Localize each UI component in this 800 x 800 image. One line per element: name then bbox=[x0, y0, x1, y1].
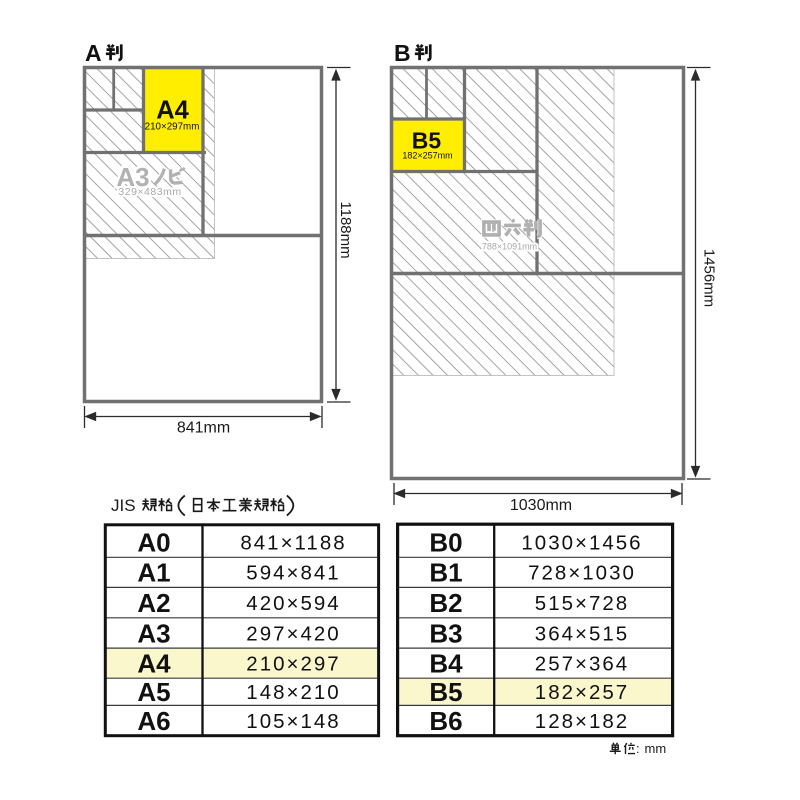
svg-text:B2: B2 bbox=[429, 588, 462, 618]
svg-text:A2: A2 bbox=[137, 588, 170, 618]
svg-text:B6: B6 bbox=[429, 706, 462, 736]
svg-text:182×257: 182×257 bbox=[535, 681, 629, 704]
svg-text:728×1030: 728×1030 bbox=[528, 562, 636, 585]
svg-text:182×257mm: 182×257mm bbox=[402, 150, 452, 160]
svg-text:329×483mm: 329×483mm bbox=[118, 186, 181, 198]
svg-text:mm: mm bbox=[645, 741, 667, 756]
svg-text:210×297mm: 210×297mm bbox=[145, 122, 200, 133]
svg-text:841mm: 841mm bbox=[177, 420, 230, 437]
svg-text:420×594: 420×594 bbox=[246, 592, 340, 615]
svg-text:A4: A4 bbox=[156, 97, 189, 125]
svg-text:210×297: 210×297 bbox=[246, 653, 340, 676]
svg-text::: : bbox=[636, 741, 640, 756]
svg-text:B5: B5 bbox=[429, 677, 462, 707]
svg-text:257×364: 257×364 bbox=[535, 653, 629, 676]
svg-text:1456mm: 1456mm bbox=[701, 249, 718, 307]
svg-text:1188mm: 1188mm bbox=[337, 201, 354, 258]
svg-text:B0: B0 bbox=[429, 527, 462, 557]
svg-text:JIS: JIS bbox=[111, 496, 136, 515]
svg-text:B4: B4 bbox=[429, 649, 463, 679]
svg-text:841×1188: 841×1188 bbox=[240, 531, 346, 554]
svg-text:A4: A4 bbox=[137, 649, 171, 679]
svg-text:148×210: 148×210 bbox=[246, 681, 340, 704]
svg-text:1030×1456: 1030×1456 bbox=[521, 531, 642, 554]
svg-text:B: B bbox=[394, 40, 411, 66]
svg-text:B1: B1 bbox=[429, 558, 462, 588]
svg-text:128×182: 128×182 bbox=[535, 710, 629, 733]
svg-text:A1: A1 bbox=[137, 558, 170, 588]
svg-text:364×515: 364×515 bbox=[535, 622, 629, 645]
svg-text:A6: A6 bbox=[137, 706, 170, 736]
svg-text:297×420: 297×420 bbox=[246, 622, 340, 645]
svg-text:105×148: 105×148 bbox=[246, 710, 340, 733]
svg-text:A3: A3 bbox=[137, 618, 170, 648]
svg-text:1030mm: 1030mm bbox=[510, 497, 572, 514]
svg-text:788×1091mm: 788×1091mm bbox=[482, 242, 537, 252]
svg-text:A: A bbox=[85, 40, 102, 66]
svg-text:594×841: 594×841 bbox=[246, 562, 340, 585]
svg-text:A0: A0 bbox=[137, 527, 170, 557]
svg-text:515×728: 515×728 bbox=[535, 592, 629, 615]
svg-text:A5: A5 bbox=[137, 677, 170, 707]
svg-text:B3: B3 bbox=[429, 618, 462, 648]
